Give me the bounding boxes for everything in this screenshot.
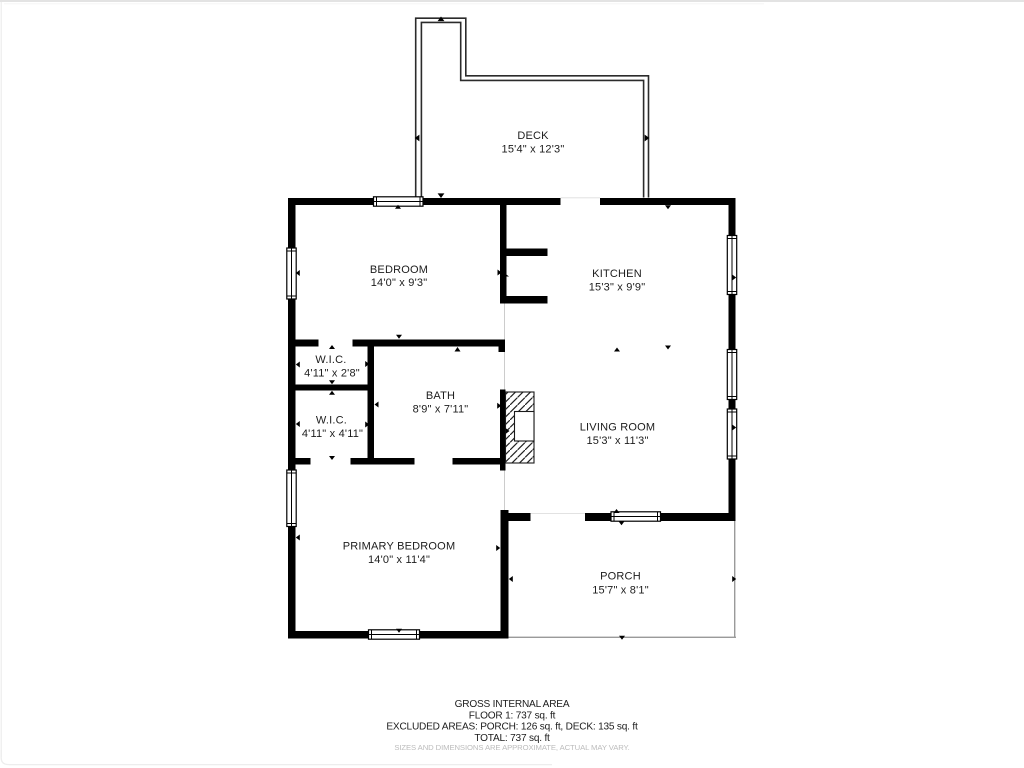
svg-text:W.I.C.: W.I.C. (316, 415, 347, 427)
svg-text:4'11" x 4'11": 4'11" x 4'11" (302, 428, 363, 440)
svg-text:FLOOR 1: 737 sq. ft: FLOOR 1: 737 sq. ft (469, 710, 556, 721)
svg-text:DECK: DECK (517, 130, 549, 142)
svg-text:15'3" x 9'9": 15'3" x 9'9" (589, 282, 646, 294)
svg-text:W.I.C.: W.I.C. (315, 354, 346, 366)
svg-text:15'4" x 12'3": 15'4" x 12'3" (502, 144, 565, 156)
svg-text:BATH: BATH (426, 390, 455, 402)
svg-text:14'0" x 9'3": 14'0" x 9'3" (371, 277, 428, 289)
svg-text:14'0" x 11'4": 14'0" x 11'4" (368, 554, 430, 566)
svg-text:PORCH: PORCH (600, 571, 641, 583)
svg-text:BEDROOM: BEDROOM (370, 264, 428, 276)
svg-text:8'9" x 7'11": 8'9" x 7'11" (413, 404, 469, 416)
svg-text:15'7" x 8'1": 15'7" x 8'1" (592, 585, 649, 597)
svg-text:PRIMARY BEDROOM: PRIMARY BEDROOM (343, 541, 456, 553)
svg-text:EXCLUDED AREAS: PORCH: 126 sq.: EXCLUDED AREAS: PORCH: 126 sq. ft, DECK:… (386, 722, 638, 733)
svg-text:4'11" x 2'8": 4'11" x 2'8" (304, 368, 360, 380)
svg-text:SIZES AND DIMENSIONS ARE APPRO: SIZES AND DIMENSIONS ARE APPROXIMATE, AC… (394, 743, 629, 752)
svg-text:KITCHEN: KITCHEN (592, 268, 642, 280)
svg-text:LIVING ROOM: LIVING ROOM (580, 422, 656, 434)
svg-text:15'3" x 11'3": 15'3" x 11'3" (586, 435, 648, 447)
svg-text:GROSS INTERNAL AREA: GROSS INTERNAL AREA (455, 699, 570, 710)
